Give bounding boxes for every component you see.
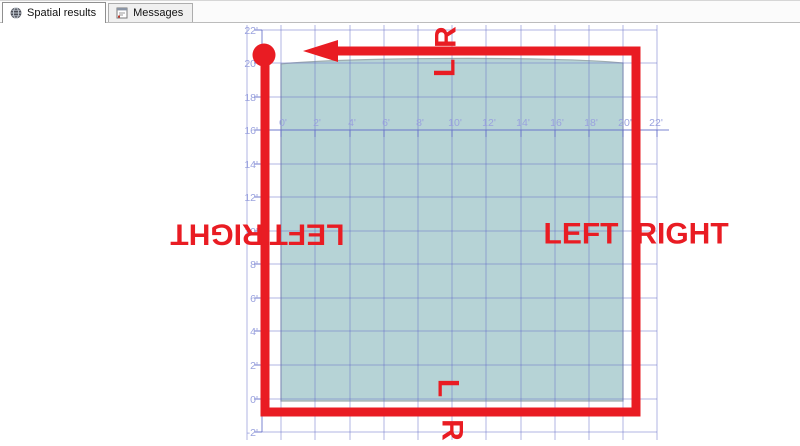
- y-tick-label: 14': [244, 159, 258, 171]
- y-tick-label: 6': [250, 293, 258, 305]
- globe-icon: [10, 7, 22, 19]
- label-right-inside: LEFT: [544, 218, 619, 251]
- label-right-outside: RIGHT: [635, 218, 728, 251]
- x-tick-label: 14': [516, 117, 530, 129]
- x-tick-label: 22': [649, 117, 663, 129]
- x-tick-label: 12': [482, 117, 496, 129]
- y-tick-label: 2': [250, 360, 258, 372]
- path-start-dot: [253, 44, 276, 67]
- x-tick-label: 8': [416, 117, 424, 129]
- x-tick-label: 18': [584, 117, 598, 129]
- label-bottom-inside: L: [432, 379, 465, 397]
- y-tick-label: 16': [244, 125, 258, 137]
- results-tab-bar: Spatial results Messages: [0, 0, 800, 23]
- y-tick-label: 0': [250, 394, 258, 406]
- x-tick-label: 2': [313, 117, 321, 129]
- label-left-inside: LEFT: [270, 218, 345, 251]
- y-tick-label: 12': [244, 192, 258, 204]
- label-top-inside: L: [429, 59, 462, 77]
- label-bottom-outside: R: [436, 419, 469, 441]
- label-left-outside: RIGHT: [170, 218, 263, 251]
- messages-icon: [116, 7, 128, 19]
- y-tick-label: 4': [250, 326, 258, 338]
- y-tick-label: 18': [244, 92, 258, 104]
- x-tick-label: 6': [382, 117, 390, 129]
- tab-spatial-results-label: Spatial results: [27, 7, 96, 19]
- x-tick-label: 4': [348, 117, 356, 129]
- y-tick-label: -2': [247, 427, 258, 439]
- spatial-plot-canvas[interactable]: 0' 2' 4' 6' 8' 10' 12' 14' 16' 18' 20' 2…: [0, 23, 800, 446]
- tab-messages[interactable]: Messages: [108, 3, 193, 22]
- x-tick-label: 0': [279, 117, 287, 129]
- y-tick-label: 8': [250, 259, 258, 271]
- x-tick-label: 16': [550, 117, 564, 129]
- spatial-plot-svg: 0' 2' 4' 6' 8' 10' 12' 14' 16' 18' 20' 2…: [0, 23, 800, 446]
- x-tick-label: 20': [618, 117, 632, 129]
- x-tick-label: 10': [448, 117, 462, 129]
- arrow-left-icon: [303, 40, 338, 62]
- y-tick-label: 22': [244, 25, 258, 37]
- tab-spatial-results[interactable]: Spatial results: [2, 2, 106, 23]
- label-top-outside: R: [430, 26, 463, 48]
- tab-messages-label: Messages: [133, 7, 183, 19]
